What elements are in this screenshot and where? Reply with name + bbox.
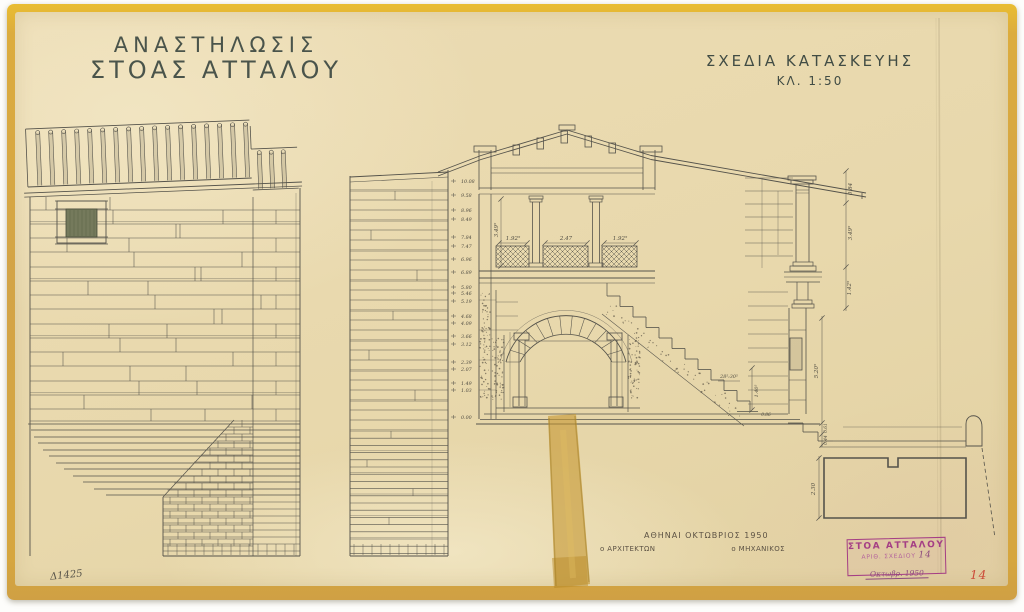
dimension-label: 4.09 [460,321,472,327]
dimension-label: 0.61 [824,423,829,433]
terrace-wall-elevation [350,170,448,556]
title-line2: ΣΤΟΑΣ ΑΤΤΑΛΟΥ [88,57,344,83]
dimension-label: 1.03 [461,388,472,394]
title-block: ΑΝΑΣΤΗΛΩΣΙΣ ΣΤΟΑΣ ΑΤΤΑΛΟΥ [88,34,344,83]
dimension-label: 1.92⁵ [506,235,521,242]
wall-elevation [22,118,303,556]
dimension-label: 2.39 [460,360,472,366]
dimension-label: 5.20⁵ [813,363,820,378]
dimension-label: 5.46 [461,291,472,297]
dimension-label: 0.86 [761,413,771,418]
drawing-number-stamp: ΣΤΟΑ ΑΤΤΑΛΟΥ ΑΡΙΘ. ΣΧΕΔΙΟΥ 14 Οκτωβρ. 19… [847,537,947,576]
dimension-label: 8.49 [461,217,472,223]
stamp-number: 14 [918,550,931,560]
dimension-label: 7.84 [461,235,472,241]
dimension-label: 1.42⁵ [846,280,853,295]
architect-label: ο ΑΡΧΙΤΕΚΤΩΝ [600,545,655,553]
page-number: 14 [970,568,987,582]
dimension-label: 3.12 [461,342,472,348]
dimension-label: 3.49⁵ [493,222,500,237]
dimension-label: 0.84 [848,182,854,195]
credits-block: ΑΘΗΝΑΙ ΟΚΤΩΒΡΙΟΣ 1950 ο ΑΡΧΙΤΕΚΤΩΝ ο ΜΗΧ… [600,531,785,553]
dimension-label: 10.08 [461,179,475,185]
dimension-label: 28⁵:30⁵ [719,374,738,380]
signature-labels: ο ΑΡΧΙΤΕΚΤΩΝ ο ΜΗΧΑΝΙΚΟΣ [600,545,785,553]
dimension-label: 6.89 [461,270,472,276]
dimension-label: 1.49 [461,381,472,387]
dimension-label: 5.80 [461,285,472,291]
dimension-label: 2.30 [811,482,817,496]
drawing-linework: 10.089.588.968.497.847.476.966.895.805.4… [0,0,1024,612]
dimension-label: 1.40⁵ [754,385,760,398]
dimension-label: 3.66 [461,334,472,340]
dimension-label: 0.44 [824,435,829,445]
paper-crease [936,18,941,574]
stamp-date: Οκτωβρ. 1950 [865,568,929,580]
stamp-series-label: ΑΡΙΘ. ΣΧΕΔΙΟΥ 14 [848,550,945,562]
stamp-series-text: ΑΡΙΘ. ΣΧΕΔΙΟΥ [861,553,916,561]
dimension-label: 8.96 [461,208,472,214]
dimension-label: 2.47 [559,236,573,242]
dimension-label: 2.07 [460,367,473,373]
repair-tape [548,414,590,588]
title-line1: ΑΝΑΣΤΗΛΩΣΙΣ [88,34,344,57]
dimension-label: 5.19 [461,299,472,305]
place-date: ΑΘΗΝΑΙ ΟΚΤΩΒΡΙΟΣ 1950 [644,531,785,540]
engineer-label: ο ΜΗΧΑΝΙΚΟΣ [731,545,785,553]
dimension-label: 6.96 [461,257,472,263]
dimension-label: 7.47 [461,244,473,250]
scanned-sheet: 10.089.588.968.497.847.476.966.895.805.4… [0,0,1024,612]
drawing-scale: ΚΛ. 1:50 [698,74,922,88]
dimension-label: 0.00 [461,415,472,421]
subtitle: ΣΧΕΔΙΑ ΚΑΤΑΣΚΕΥΗΣ [698,52,922,70]
dimension-label: 9.58 [461,193,472,199]
subtitle-block: ΣΧΕΔΙΑ ΚΑΤΑΣΚΕΥΗΣ ΚΛ. 1:50 [698,52,922,88]
stoa-cross-section [438,125,866,426]
dimension-label: 3.49⁵ [847,225,854,240]
dimension-label: 4.68 [460,314,472,320]
dimension-label: 1.92⁵ [613,235,628,242]
